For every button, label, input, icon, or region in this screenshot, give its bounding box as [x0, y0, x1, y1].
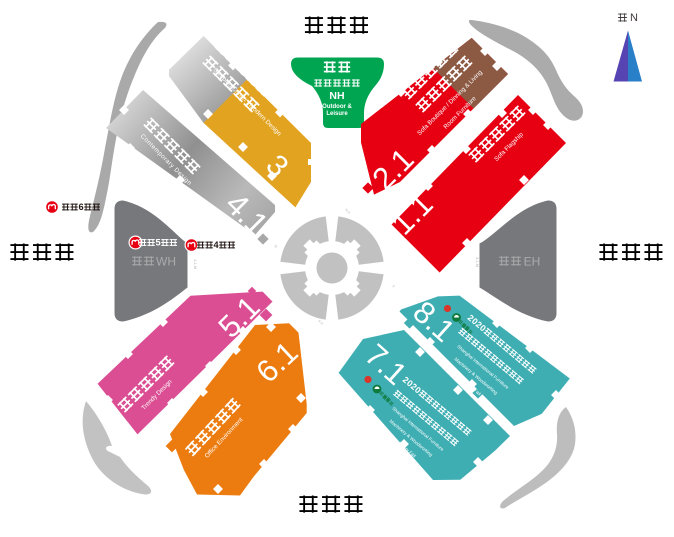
svg-text:5: 5	[155, 238, 160, 248]
svg-text:WH: WH	[156, 255, 176, 269]
svg-text:4-1-M: 4-1-M	[193, 259, 197, 269]
svg-text:3-1-M: 3-1-M	[475, 257, 479, 267]
svg-text:EH: EH	[524, 255, 541, 269]
svg-text:Outdoor &: Outdoor &	[322, 104, 352, 110]
svg-text:4: 4	[213, 240, 219, 250]
svg-text:Leisure: Leisure	[326, 111, 348, 117]
svg-text:NH: NH	[329, 90, 344, 102]
svg-text:6: 6	[78, 202, 83, 212]
svg-text:N: N	[630, 12, 638, 24]
